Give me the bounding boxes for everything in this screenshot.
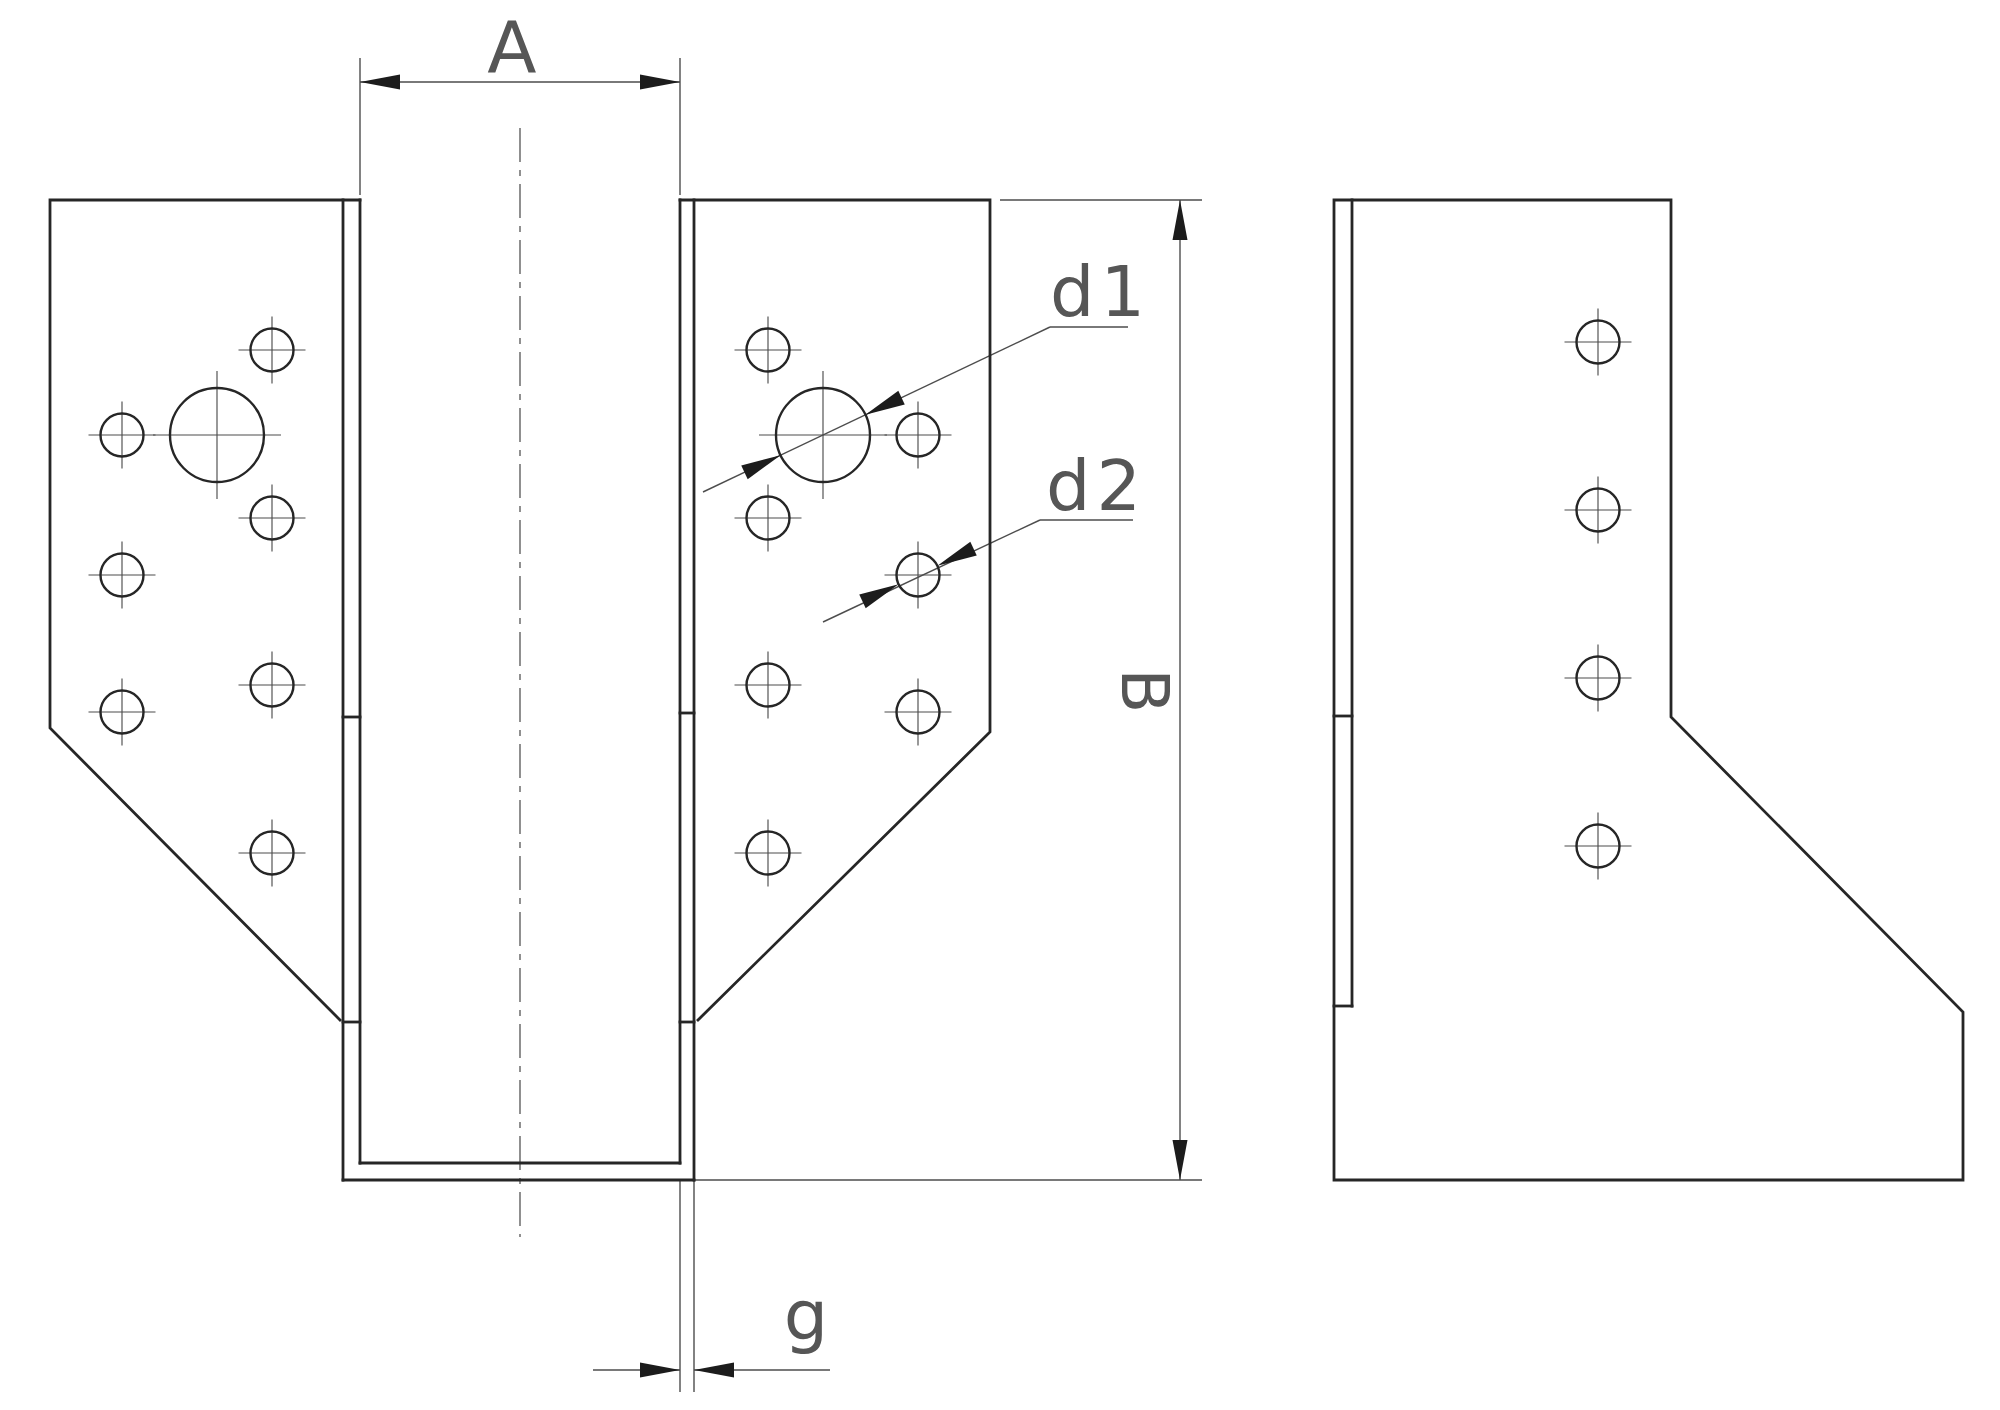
dim-label-b: B	[1106, 668, 1183, 713]
dim-label-d2: d2	[1046, 445, 1147, 527]
dim-label-g: g	[784, 1275, 828, 1357]
technical-drawing-svg: ABd1d2g	[0, 0, 2000, 1410]
joist-hanger-technical-drawing: ABd1d2g	[0, 0, 2000, 1410]
dim-label-a: A	[487, 5, 536, 89]
dim-label-d1: d1	[1050, 251, 1151, 333]
drawing-background	[0, 0, 2000, 1410]
